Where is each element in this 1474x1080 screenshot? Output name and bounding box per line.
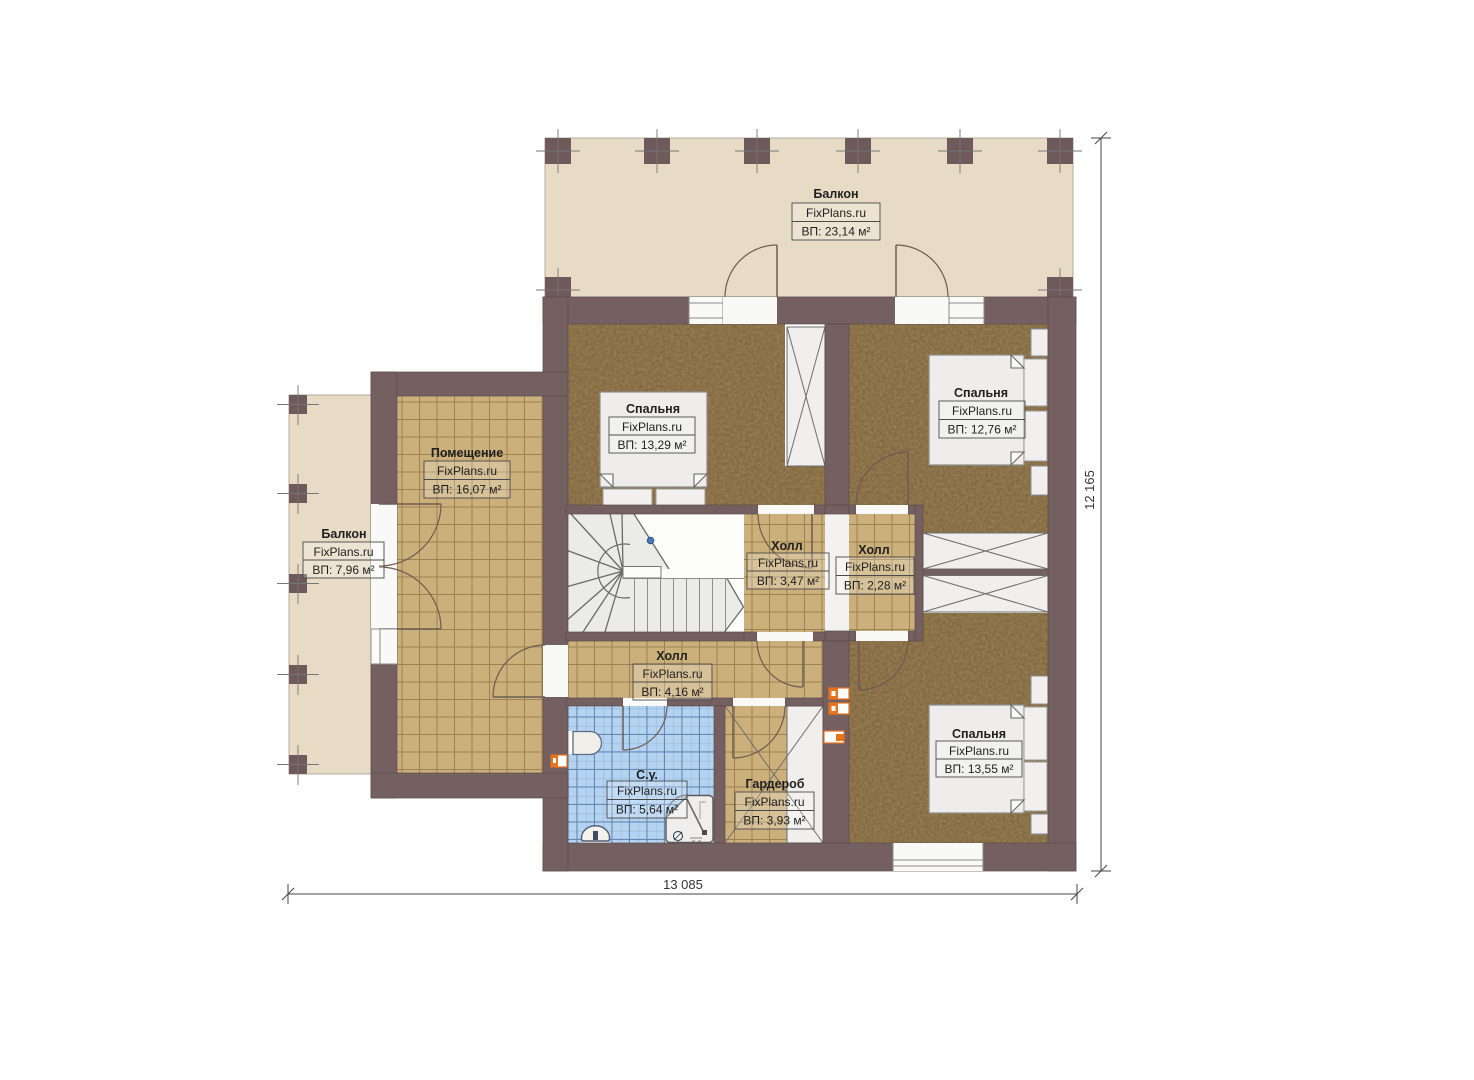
- svg-text:ВП: 13,29 м²: ВП: 13,29 м²: [618, 438, 687, 452]
- svg-text:ВП: 7,96 м²: ВП: 7,96 м²: [312, 563, 374, 577]
- svg-text:FixPlans.ru: FixPlans.ru: [806, 206, 866, 220]
- svg-text:ВП: 4,16 м²: ВП: 4,16 м²: [641, 685, 703, 699]
- svg-text:Спальня: Спальня: [952, 727, 1006, 741]
- svg-text:Балкон: Балкон: [321, 527, 366, 541]
- svg-text:ВП: 23,14 м²: ВП: 23,14 м²: [802, 225, 871, 239]
- svg-text:Холл: Холл: [858, 543, 889, 557]
- svg-text:ВП: 3,47 м²: ВП: 3,47 м²: [757, 574, 819, 588]
- svg-text:FixPlans.ru: FixPlans.ru: [642, 667, 702, 681]
- svg-text:FixPlans.ru: FixPlans.ru: [949, 744, 1009, 758]
- svg-text:FixPlans.ru: FixPlans.ru: [744, 795, 804, 809]
- svg-text:Гардероб: Гардероб: [745, 777, 804, 791]
- svg-text:FixPlans.ru: FixPlans.ru: [313, 545, 373, 559]
- svg-text:FixPlans.ru: FixPlans.ru: [617, 784, 677, 798]
- svg-text:ВП: 2,28 м²: ВП: 2,28 м²: [844, 579, 906, 593]
- svg-text:ВП: 5,64 м²: ВП: 5,64 м²: [616, 803, 678, 817]
- svg-text:Холл: Холл: [771, 539, 802, 553]
- svg-text:Спальня: Спальня: [626, 402, 680, 416]
- svg-text:FixPlans.ru: FixPlans.ru: [622, 420, 682, 434]
- svg-text:ВП: 12,76 м²: ВП: 12,76 м²: [948, 423, 1017, 437]
- svg-text:ВП: 3,93 м²: ВП: 3,93 м²: [743, 814, 805, 828]
- svg-text:Балкон: Балкон: [813, 187, 858, 201]
- svg-text:FixPlans.ru: FixPlans.ru: [437, 464, 497, 478]
- svg-text:FixPlans.ru: FixPlans.ru: [758, 556, 818, 570]
- svg-text:FixPlans.ru: FixPlans.ru: [845, 560, 905, 574]
- svg-text:FixPlans.ru: FixPlans.ru: [952, 404, 1012, 418]
- svg-text:С.у.: С.у.: [636, 768, 658, 782]
- svg-text:Спальня: Спальня: [954, 386, 1008, 400]
- svg-text:13 085: 13 085: [663, 877, 703, 892]
- svg-text:ВП: 16,07 м²: ВП: 16,07 м²: [433, 483, 502, 497]
- svg-text:Помещение: Помещение: [431, 446, 503, 460]
- svg-text:12 165: 12 165: [1082, 470, 1097, 510]
- svg-text:ВП: 13,55 м²: ВП: 13,55 м²: [945, 762, 1014, 776]
- svg-text:Холл: Холл: [656, 649, 687, 663]
